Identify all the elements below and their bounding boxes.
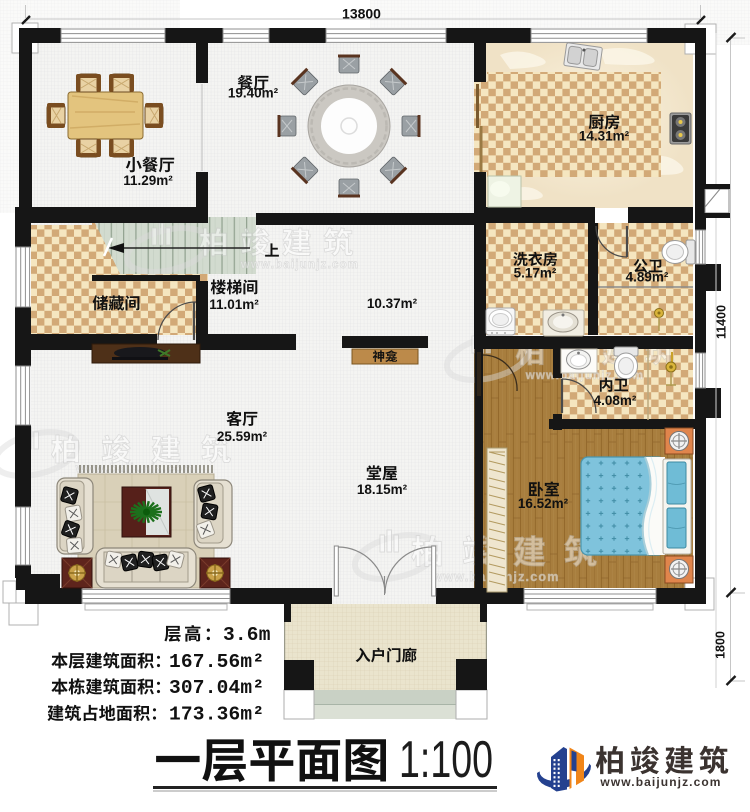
svg-text:1800: 1800 (714, 631, 728, 659)
svg-text:11400: 11400 (715, 305, 729, 339)
svg-text:4.89m²: 4.89m² (626, 270, 669, 285)
svg-text:10.37m²: 10.37m² (367, 296, 418, 311)
svg-text:173.36m²: 173.36m² (169, 704, 264, 726)
svg-text:167.56m²: 167.56m² (169, 651, 264, 673)
svg-text:11.01m²: 11.01m² (209, 297, 259, 312)
svg-text:www.baijunjz.com: www.baijunjz.com (599, 775, 721, 789)
svg-text:5.17m²: 5.17m² (514, 266, 557, 281)
svg-text:www.baijunjz.com: www.baijunjz.com (240, 259, 359, 271)
svg-text:13800: 13800 (342, 6, 381, 22)
svg-text:3.6m: 3.6m (223, 624, 271, 646)
svg-text:1:100: 1:100 (399, 731, 493, 789)
svg-text:14.31m²: 14.31m² (579, 129, 630, 144)
svg-text:16.52m²: 16.52m² (518, 496, 569, 511)
svg-text:18.15m²: 18.15m² (357, 482, 408, 497)
svg-text:19.40m²: 19.40m² (228, 86, 279, 101)
svg-text:25.59m²: 25.59m² (217, 429, 268, 444)
svg-text:4.08m²: 4.08m² (594, 393, 637, 408)
svg-text:11.29m²: 11.29m² (123, 173, 173, 188)
svg-text:307.04m²: 307.04m² (169, 677, 264, 699)
